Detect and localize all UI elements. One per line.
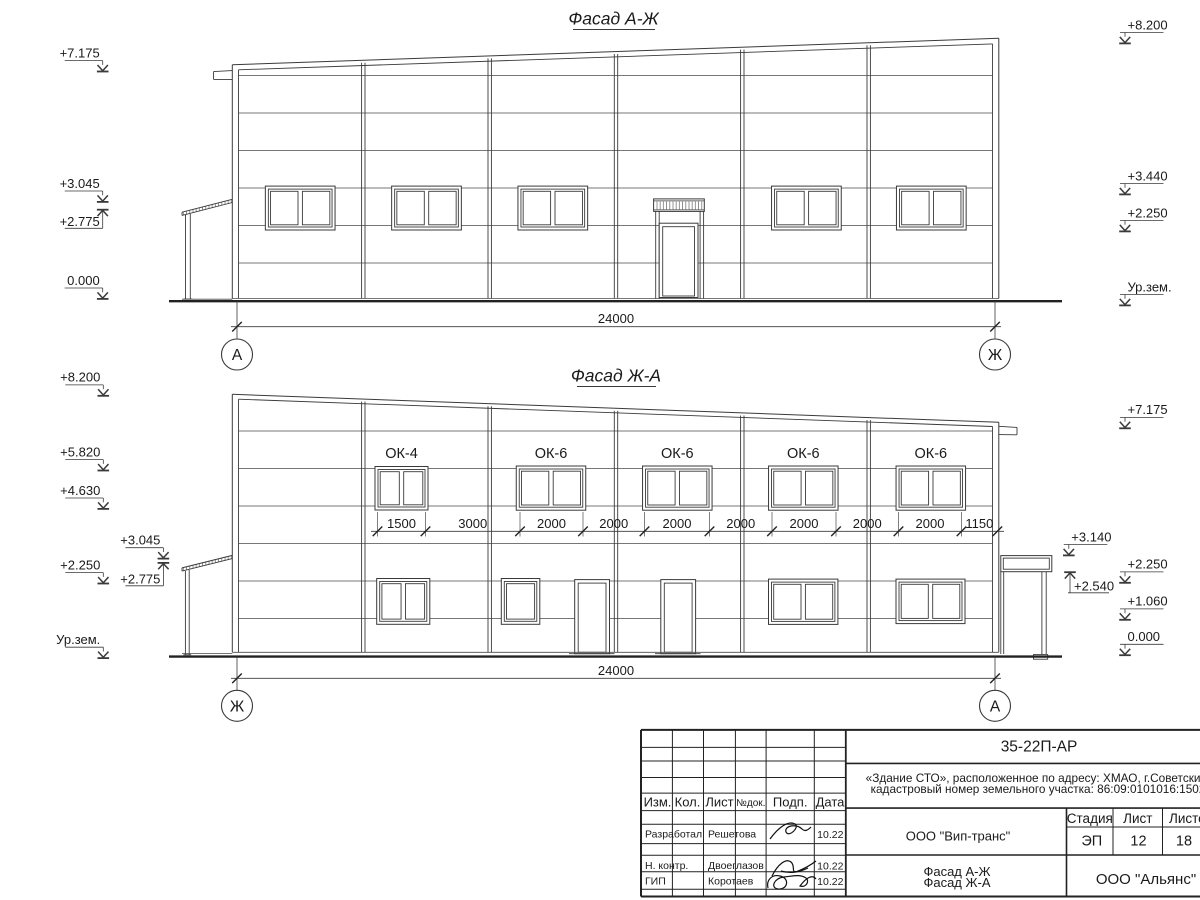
svg-text:10.22: 10.22 — [817, 876, 843, 888]
svg-text:1500: 1500 — [387, 516, 416, 531]
svg-text:+2.250: +2.250 — [60, 557, 100, 572]
svg-text:А: А — [232, 347, 243, 364]
svg-text:2000: 2000 — [599, 516, 628, 531]
svg-text:Двоеглазов: Двоеглазов — [708, 860, 764, 872]
svg-text:Листов: Листов — [1169, 811, 1200, 826]
svg-text:+2.250: +2.250 — [1128, 205, 1168, 220]
svg-text:№док.: №док. — [736, 798, 765, 809]
svg-text:Ж: Ж — [230, 698, 245, 715]
svg-text:ОК-6: ОК-6 — [914, 446, 947, 462]
svg-text:ООО "Альянс": ООО "Альянс" — [1096, 871, 1196, 888]
svg-text:+2.250: +2.250 — [1128, 557, 1168, 572]
svg-text:2000: 2000 — [916, 516, 945, 531]
svg-text:Фасад А-Ж: Фасад А-Ж — [568, 9, 659, 29]
svg-text:2000: 2000 — [853, 516, 882, 531]
svg-text:ОК-6: ОК-6 — [661, 446, 694, 462]
svg-text:+2.540: +2.540 — [1074, 579, 1114, 594]
svg-text:Кол.: Кол. — [675, 794, 701, 809]
svg-text:ОК-6: ОК-6 — [787, 446, 820, 462]
svg-text:Изм.: Изм. — [644, 794, 672, 809]
svg-text:0.000: 0.000 — [1128, 629, 1161, 644]
svg-text:Н. контр.: Н. контр. — [645, 860, 688, 872]
svg-text:2000: 2000 — [726, 516, 755, 531]
svg-text:+8.200: +8.200 — [1128, 17, 1168, 32]
svg-text:+1.060: +1.060 — [1128, 594, 1168, 609]
svg-text:24000: 24000 — [598, 663, 634, 678]
svg-text:+3.045: +3.045 — [120, 533, 160, 548]
svg-text:3000: 3000 — [458, 516, 487, 531]
svg-text:2000: 2000 — [663, 516, 692, 531]
svg-text:10.22: 10.22 — [817, 861, 843, 873]
svg-text:+7.175: +7.175 — [1128, 402, 1168, 417]
svg-text:ОК-6: ОК-6 — [535, 446, 568, 462]
svg-text:10.22: 10.22 — [817, 829, 843, 841]
svg-text:2000: 2000 — [790, 516, 819, 531]
svg-text:2000: 2000 — [537, 516, 566, 531]
svg-text:+3.440: +3.440 — [1128, 168, 1168, 183]
svg-text:24000: 24000 — [598, 311, 634, 326]
svg-text:+4.630: +4.630 — [60, 483, 100, 498]
svg-text:Ж: Ж — [988, 347, 1003, 364]
svg-text:35-22П-АР: 35-22П-АР — [1001, 739, 1078, 756]
svg-text:+2.775: +2.775 — [60, 214, 100, 229]
svg-text:Коротаев: Коротаев — [708, 876, 754, 888]
svg-text:ГИП: ГИП — [645, 876, 666, 888]
svg-text:Решетова: Решетова — [708, 829, 756, 841]
svg-text:+2.775: +2.775 — [120, 572, 160, 587]
svg-text:Стадия: Стадия — [1067, 811, 1113, 826]
svg-text:+5.820: +5.820 — [60, 444, 100, 459]
svg-text:0.000: 0.000 — [67, 273, 100, 288]
svg-text:Ур.зем.: Ур.зем. — [56, 632, 100, 647]
svg-text:1150: 1150 — [965, 516, 993, 531]
svg-text:+3.045: +3.045 — [60, 176, 100, 191]
svg-text:+3.140: +3.140 — [1071, 529, 1111, 544]
svg-text:Подп.: Подп. — [773, 794, 808, 809]
svg-text:Лист: Лист — [1123, 811, 1152, 826]
svg-text:кадастровый номер земельного у: кадастровый номер земельного участка: 86… — [871, 782, 1200, 796]
svg-text:Фасад Ж-А: Фасад Ж-А — [923, 875, 990, 890]
svg-text:Фасад Ж-А: Фасад Ж-А — [571, 366, 661, 386]
svg-text:Разработал: Разработал — [645, 829, 702, 841]
svg-text:+7.175: +7.175 — [60, 45, 100, 60]
svg-text:Дата: Дата — [816, 794, 846, 809]
svg-text:+8.200: +8.200 — [60, 370, 100, 385]
svg-text:ЭП: ЭП — [1081, 833, 1102, 849]
svg-text:18: 18 — [1176, 833, 1192, 849]
svg-text:А: А — [990, 698, 1001, 715]
svg-text:Ур.зем.: Ур.зем. — [1128, 279, 1172, 294]
svg-text:Лист: Лист — [705, 794, 733, 809]
svg-text:ОК-4: ОК-4 — [385, 446, 418, 462]
svg-text:ООО "Вип-транс": ООО "Вип-транс" — [906, 829, 1011, 844]
svg-text:12: 12 — [1130, 833, 1146, 849]
